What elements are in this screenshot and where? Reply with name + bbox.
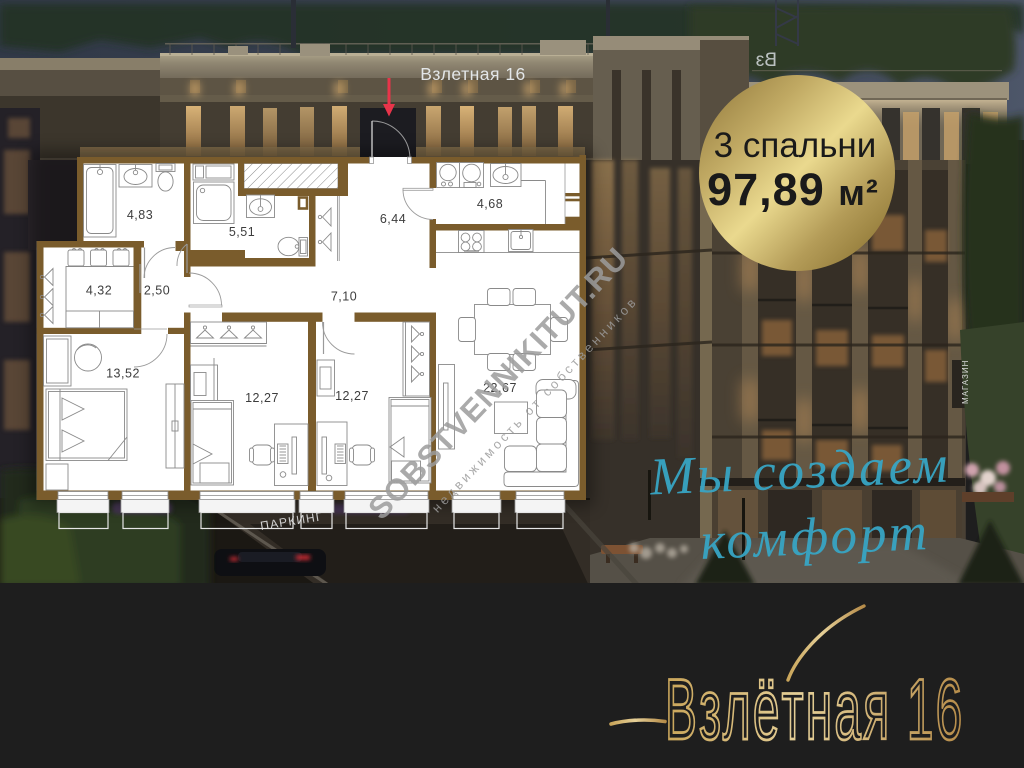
svg-text:13,52: 13,52 <box>106 367 140 381</box>
svg-text:4,68: 4,68 <box>477 197 503 211</box>
svg-text:3 спальни: 3 спальни <box>714 126 877 165</box>
svg-text:комфорт: комфорт <box>699 503 931 571</box>
svg-text:5,51: 5,51 <box>229 225 255 239</box>
svg-text:Вз: Вз <box>756 50 777 71</box>
svg-text:Взлетная 16: Взлетная 16 <box>420 64 526 84</box>
svg-text:7,10: 7,10 <box>331 290 357 304</box>
svg-text:12,27: 12,27 <box>245 391 279 405</box>
svg-text:6,44: 6,44 <box>380 212 406 226</box>
svg-text:4,32: 4,32 <box>86 284 112 298</box>
svg-text:97,89 м²: 97,89 м² <box>707 164 879 215</box>
svg-text:12,27: 12,27 <box>335 389 369 403</box>
svg-text:МАГАЗИН: МАГАЗИН <box>961 360 970 404</box>
svg-text:2,50: 2,50 <box>144 284 170 298</box>
svg-text:4,83: 4,83 <box>127 208 153 222</box>
svg-text:Взлётная 16: Взлётная 16 <box>665 661 964 757</box>
